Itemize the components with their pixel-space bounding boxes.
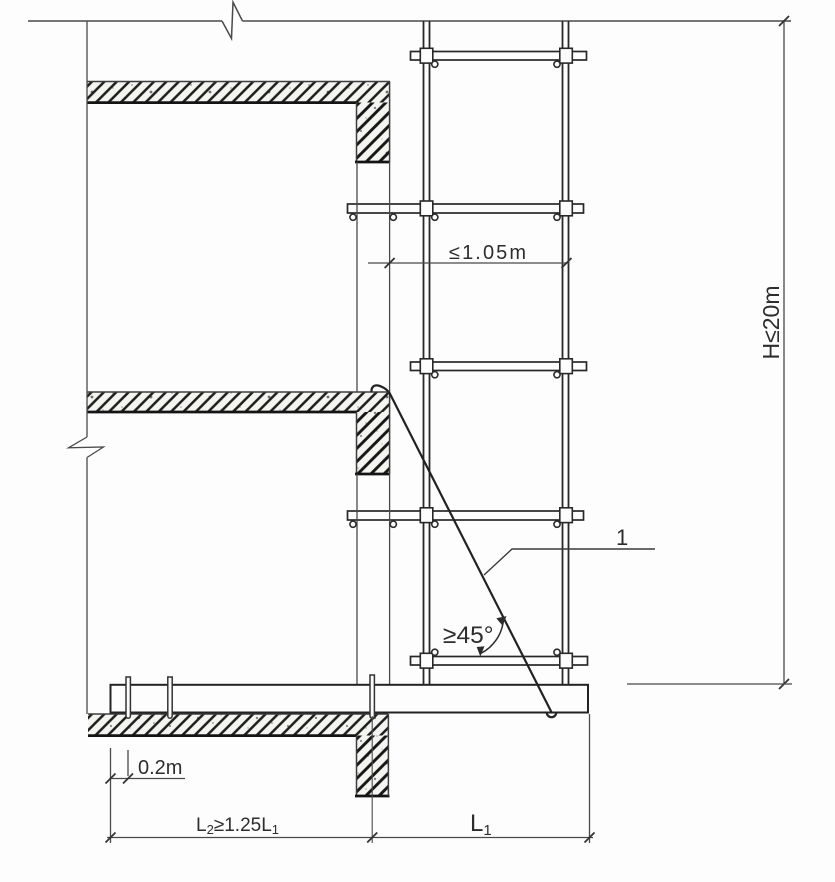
svg-text:≥45°: ≥45° — [443, 622, 494, 649]
svg-text:L1: L1 — [470, 810, 492, 839]
svg-text:≤1.05m: ≤1.05m — [449, 242, 528, 264]
svg-text:H≤20m: H≤20m — [758, 286, 784, 360]
svg-text:L2≥1.25L1: L2≥1.25L1 — [196, 815, 279, 837]
svg-text:0.2m: 0.2m — [138, 757, 182, 779]
svg-text:1: 1 — [616, 525, 628, 550]
